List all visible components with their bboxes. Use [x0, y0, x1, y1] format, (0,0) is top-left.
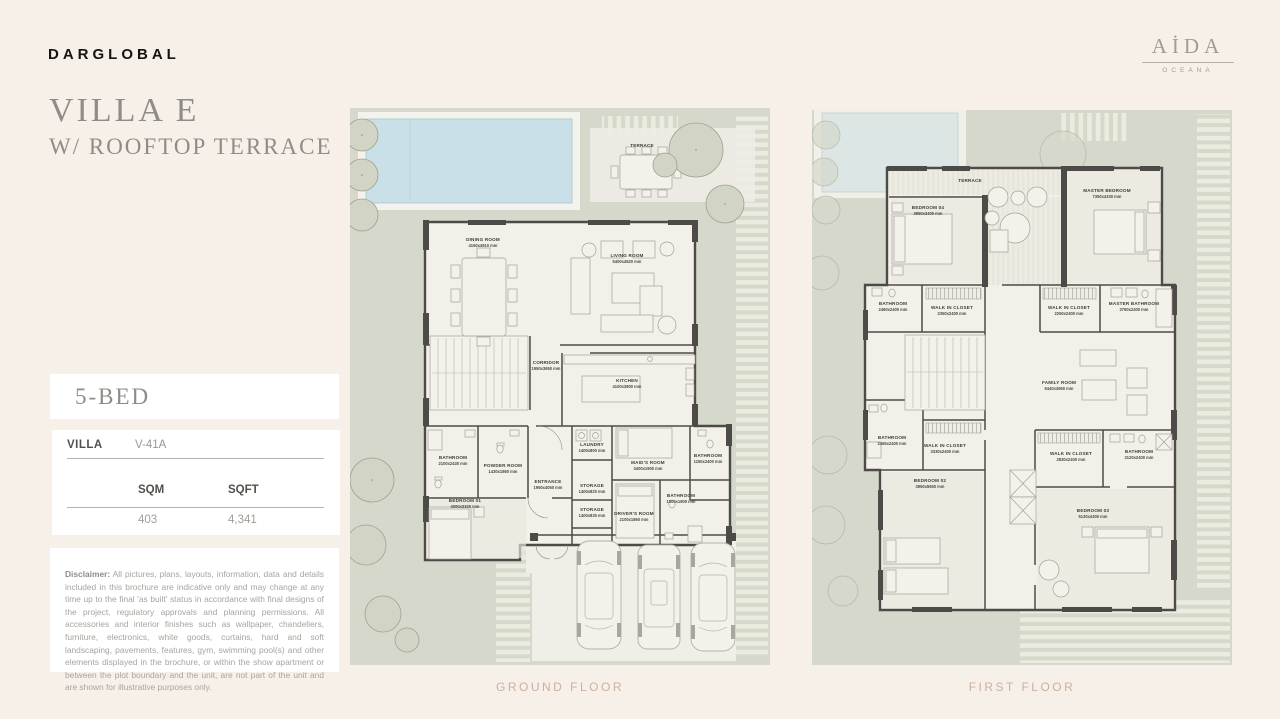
room-label: POWDER ROOM: [484, 463, 522, 468]
room-label: MASTER BATHROOM: [1109, 301, 1159, 306]
room-label: BATHROOM: [879, 301, 907, 306]
room-label: FAMILY ROOM: [1042, 380, 1076, 385]
cars: [577, 541, 735, 651]
room-label: TERRACE: [630, 143, 654, 148]
room-label: WALK IN CLOSET: [1050, 451, 1092, 456]
room-label: STORAGE: [580, 507, 604, 512]
room-dims: 5130x4300 mm: [1079, 514, 1108, 519]
aida-logo-subtext: OCEANA: [1134, 67, 1242, 74]
room-label: CORRIDOR: [533, 360, 560, 365]
room-label: STORAGE: [580, 483, 604, 488]
page-title: VILLA E W/ ROOFTOP TERRACE: [49, 92, 333, 160]
sqm-value: 403: [138, 514, 157, 526]
room-dims: 3950x5650 mm: [916, 484, 945, 489]
room-dims: 2460x2400 mm: [879, 307, 908, 312]
room-dims: 2350x2400 mm: [938, 311, 967, 316]
staircase: [430, 336, 528, 410]
room-label: LIVING ROOM: [610, 253, 643, 258]
room-dims: 5400x4520 mm: [613, 259, 642, 264]
villa-number: V-41A: [135, 439, 166, 451]
swimming-pool: [366, 119, 572, 203]
room-dims: 2830x2400 mm: [1057, 457, 1086, 462]
room-label: MASTER BEDROOM: [1083, 188, 1130, 193]
room-dims: 1950x3650 mm: [532, 366, 561, 371]
ground-floor-plan: TERRACE DINING ROOM 4150x4910 mm LIVING …: [350, 108, 770, 665]
room-label: KITCHEN: [616, 378, 638, 383]
ground-floor-caption: GROUND FLOOR: [350, 680, 770, 694]
room-label: BATHROOM: [667, 493, 695, 498]
room-label: BATHROOM: [694, 453, 722, 458]
room-label: BEDROOM 03: [1077, 508, 1110, 513]
bed-count-label: 5-BED: [75, 384, 150, 410]
entrance-walkway: [526, 545, 576, 573]
room-dims: 1430x1860 mm: [489, 469, 518, 474]
paving-strip-right: [1197, 114, 1230, 590]
maids-room-bed: [616, 428, 672, 458]
sqm-header: SQM: [138, 484, 164, 496]
room-label: ENTRANCE: [534, 479, 561, 484]
wardrobe-cross: [1010, 470, 1036, 524]
room-dims: 2100x1860 mm: [620, 517, 649, 522]
room-label: BEDROOM 02: [914, 478, 947, 483]
room-dims: 1400x830 mm: [579, 513, 606, 518]
room-dims: 1950x4050 mm: [534, 485, 563, 490]
disclaimer-label: Disclaimer:: [65, 569, 110, 579]
room-dims: 1150x2400 mm: [694, 459, 723, 464]
disclaimer-box: Disclaimer: All pictures, plans, layouts…: [50, 548, 339, 672]
room-label: BATHROOM: [439, 455, 467, 460]
room-label: DRIVER'S ROOM: [614, 511, 654, 516]
villa-subtitle: W/ ROOFTOP TERRACE: [49, 134, 333, 160]
first-building: [863, 166, 1177, 612]
sqft-header: SQFT: [228, 484, 259, 496]
first-floor-plan: TERRACE BEDROOM 04 3950x3400 mm MASTER B…: [812, 110, 1232, 665]
aida-logo-rule: [1142, 62, 1234, 63]
bed-count-box: 5-BED: [50, 374, 339, 419]
first-floor-caption: FIRST FLOOR: [812, 680, 1232, 694]
divider: [67, 507, 324, 508]
room-dims: 3400x1900 mm: [634, 466, 663, 471]
room-dims: 1400x820 mm: [579, 489, 606, 494]
staircase: [905, 335, 985, 410]
room-dims: 2100x2430 mm: [439, 461, 468, 466]
room-dims: 3330x2400 mm: [931, 449, 960, 454]
room-dims: 1400x800 mm: [579, 448, 606, 453]
room-dims: 3950x3400 mm: [914, 211, 943, 216]
darglobal-logo: DARGLOBAL: [48, 46, 180, 63]
room-label: MAID'S ROOM: [631, 460, 665, 465]
sqft-value: 4,341: [228, 514, 257, 526]
villa-title: VILLA E: [49, 92, 333, 130]
room-dims: 1500x1800 mm: [667, 499, 696, 504]
aida-oceana-logo: AİDA OCEANA: [1134, 34, 1242, 74]
room-dims: 4100x3800 mm: [613, 384, 642, 389]
villa-label: VILLA: [67, 439, 103, 451]
room-dims: 4000x3320 mm: [451, 504, 480, 509]
room-dims: 4150x4910 mm: [469, 243, 498, 248]
room-dims: 2250x2400 mm: [1055, 311, 1084, 316]
room-dims: 3120x2400 mm: [1125, 455, 1154, 460]
disclaimer-text: Disclaimer: All pictures, plans, layouts…: [65, 568, 324, 694]
car: [691, 543, 735, 651]
car: [577, 541, 621, 649]
room-label: WALK IN CLOSET: [924, 443, 966, 448]
room-label: DINING ROOM: [466, 237, 500, 242]
room-label: BEDROOM 01: [449, 498, 482, 503]
room-dims: 7350x4330 mm: [1093, 194, 1122, 199]
disclaimer-body: All pictures, plans, layouts, informatio…: [65, 569, 324, 692]
room-dims: 3760x2400 mm: [1120, 307, 1149, 312]
room-label: BATHROOM: [878, 435, 906, 440]
room-label: BEDROOM 04: [912, 205, 945, 210]
room-label: TERRACE: [958, 178, 982, 183]
room-dims: 2465x2400 mm: [878, 441, 907, 446]
unit-detail-box: VILLA V-41A SQM SQFT 403 4,341: [52, 430, 340, 535]
room-label: WALK IN CLOSET: [1048, 305, 1090, 310]
room-label: LAUNDRY: [580, 442, 604, 447]
brochure-page: DARGLOBAL AİDA OCEANA VILLA E W/ ROOFTOP…: [0, 0, 1280, 719]
aida-logo-text: AİDA: [1134, 34, 1242, 59]
divider: [67, 458, 324, 459]
room-label: BATHROOM: [1125, 449, 1153, 454]
car: [638, 545, 680, 649]
room-label: WALK IN CLOSET: [931, 305, 973, 310]
room-dims: 5440x3650 mm: [1045, 386, 1074, 391]
